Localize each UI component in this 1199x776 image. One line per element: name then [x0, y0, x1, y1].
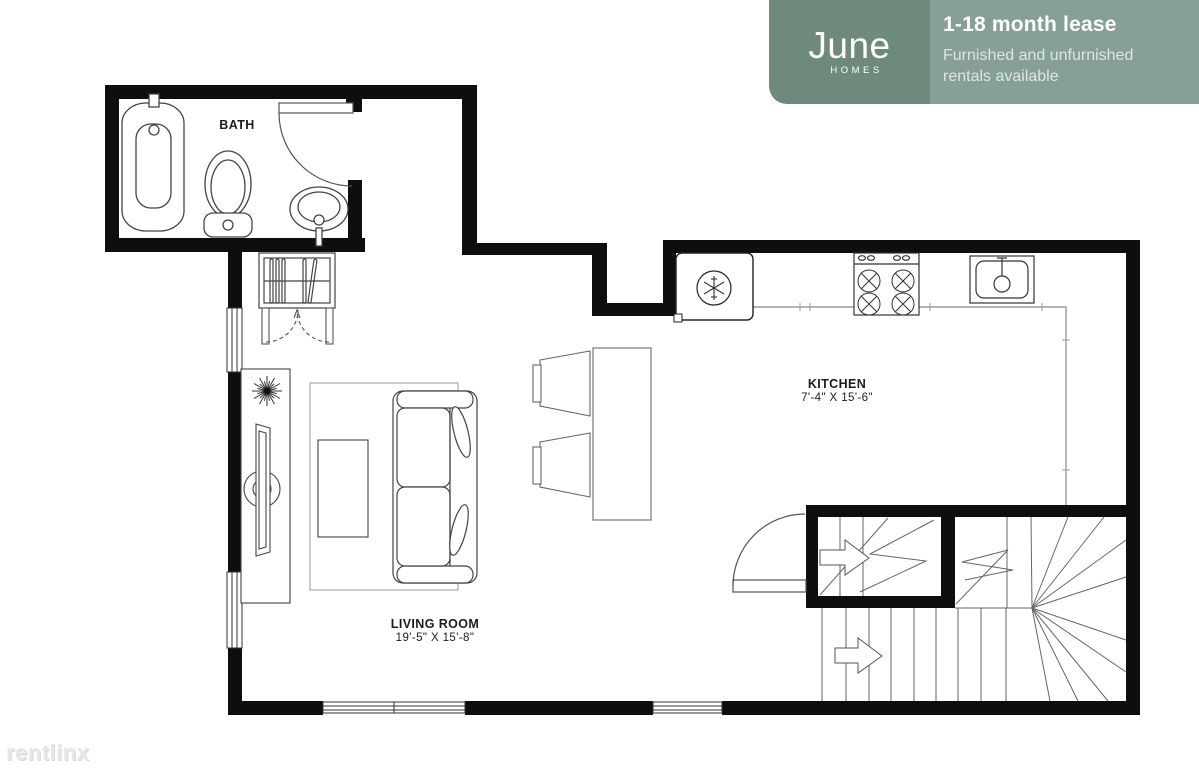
- window-left-lower: [227, 572, 242, 648]
- sofa: [393, 391, 477, 583]
- room-name: LIVING ROOM: [375, 617, 495, 631]
- floorplan-page: BATH KITCHEN 7'-4" X 15'-6" LIVING ROOM …: [0, 0, 1199, 776]
- june-homes-logo: June HOMES: [769, 0, 930, 104]
- refrigerator: [674, 253, 753, 322]
- brand-subtitle: HOMES: [830, 65, 882, 76]
- stove: [854, 253, 919, 315]
- staircase: [820, 517, 1126, 701]
- room-dimensions: 19'-5" X 15'-8": [375, 632, 495, 644]
- kitchen-sink: [970, 256, 1034, 303]
- window-bottom-right: [653, 702, 722, 713]
- brand-name: June: [808, 28, 890, 64]
- living-room-label: LIVING ROOM 19'-5" X 15'-8": [375, 617, 495, 644]
- bar-counter: [593, 348, 651, 520]
- bar-chairs: [533, 351, 590, 497]
- window-left-upper: [227, 308, 242, 372]
- bath-door: [279, 103, 353, 186]
- badge-info-panel: 1-18 month lease Furnished and unfurnish…: [930, 0, 1199, 104]
- window-bottom-left: [323, 702, 465, 713]
- bath-room-label: BATH: [190, 118, 284, 132]
- closet-doors: [262, 308, 333, 344]
- toilet: [204, 151, 252, 237]
- lease-description: Furnished and unfurnished rentals availa…: [943, 45, 1168, 87]
- room-name: BATH: [190, 118, 284, 132]
- coffee-table: [318, 440, 368, 537]
- tv-console: [241, 369, 290, 603]
- june-homes-badge: June HOMES 1-18 month lease Furnished an…: [769, 0, 1199, 104]
- bar-chair: [533, 433, 590, 497]
- kitchen-counter: [688, 303, 1070, 505]
- rentlinx-watermark: rentlinx: [6, 740, 89, 766]
- kitchen-room-label: KITCHEN 7'-4" X 15'-6": [777, 377, 897, 404]
- bathtub: [122, 94, 184, 231]
- room-name: KITCHEN: [777, 377, 897, 391]
- lease-title: 1-18 month lease: [943, 13, 1199, 37]
- room-dimensions: 7'-4" X 15'-6": [777, 392, 897, 404]
- bathroom-sink: [290, 187, 348, 246]
- wardrobe-closet: [259, 253, 335, 308]
- stair-door: [733, 514, 806, 592]
- bar-chair: [533, 351, 590, 416]
- floor-plan-drawing: [0, 0, 1199, 776]
